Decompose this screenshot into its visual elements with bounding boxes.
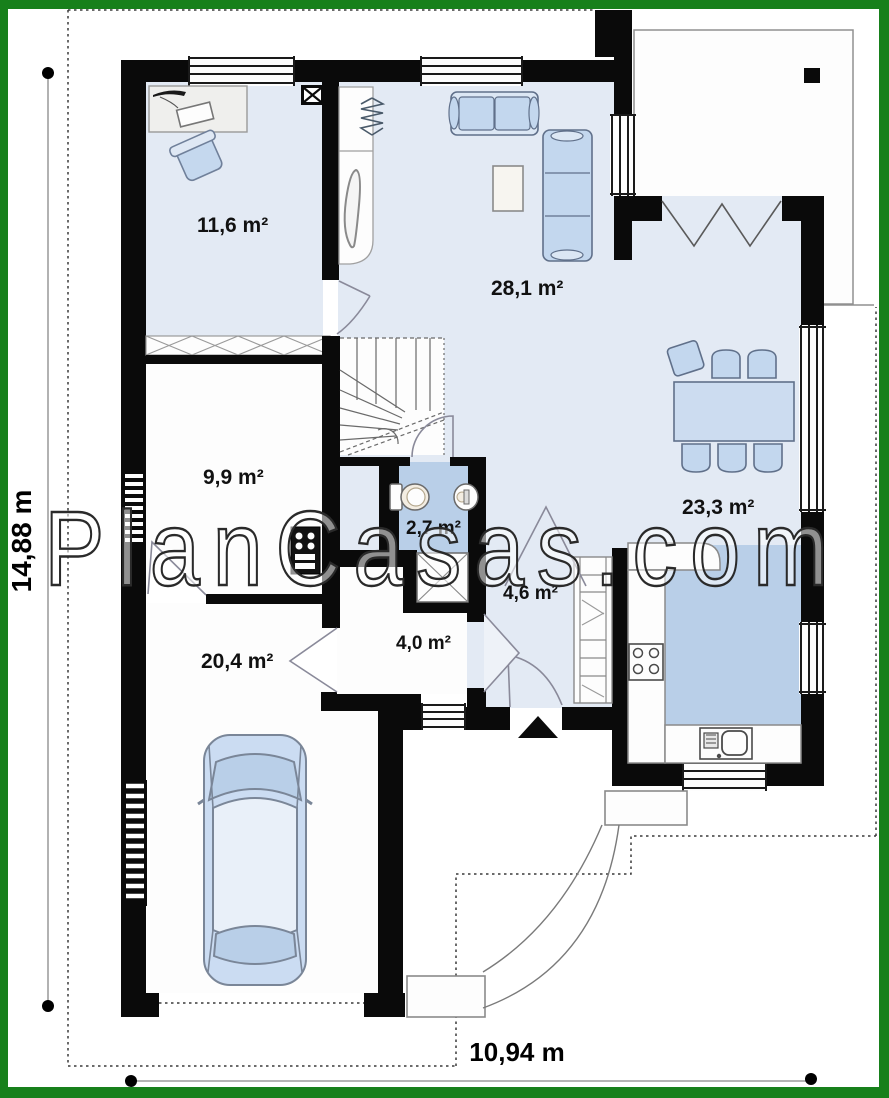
svg-text:9,9 m²: 9,9 m²: [203, 466, 264, 489]
svg-text:14,88 m: 14,88 m: [6, 490, 37, 593]
svg-text:4,0 m²: 4,0 m²: [396, 633, 451, 654]
svg-text:20,4 m²: 20,4 m²: [201, 650, 273, 673]
svg-text:10,94 m: 10,94 m: [469, 1037, 564, 1067]
svg-text:11,6 m²: 11,6 m²: [197, 214, 268, 237]
svg-text:PlanCasas.com: PlanCasas.com: [44, 489, 841, 608]
svg-text:28,1 m²: 28,1 m²: [491, 277, 563, 300]
